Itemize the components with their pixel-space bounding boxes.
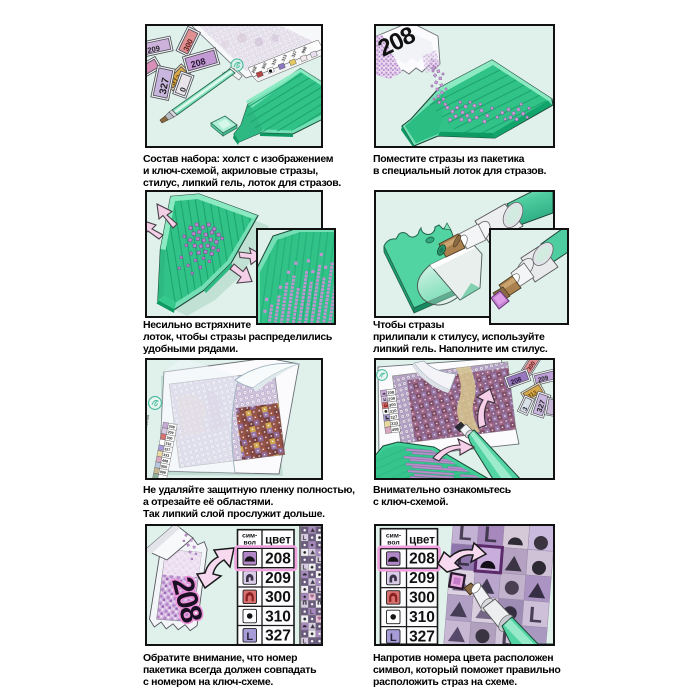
svg-text:L: L	[317, 588, 321, 594]
svg-text:300: 300	[265, 589, 291, 606]
svg-text:498: 498	[392, 426, 400, 432]
svg-text:сим-: сим-	[242, 533, 257, 540]
svg-text:327: 327	[409, 629, 435, 645]
svg-text:208: 208	[387, 390, 395, 396]
svg-text:L: L	[483, 526, 498, 547]
svg-text:L: L	[303, 566, 307, 572]
svg-text:209: 209	[265, 570, 291, 587]
svg-text:310: 310	[265, 608, 291, 625]
svg-text:L: L	[246, 631, 253, 643]
svg-text:L: L	[303, 640, 307, 644]
svg-text:L: L	[528, 602, 543, 628]
svg-text:цвет: цвет	[265, 535, 291, 547]
svg-text:327: 327	[265, 628, 291, 644]
svg-text:300: 300	[389, 402, 397, 408]
svg-text:вол: вол	[387, 540, 399, 547]
svg-text:L: L	[303, 536, 307, 542]
svg-text:310: 310	[409, 609, 435, 626]
svg-text:цвет: цвет	[409, 535, 435, 547]
svg-text:сим-: сим-	[386, 533, 401, 540]
svg-text:333: 333	[391, 420, 399, 426]
svg-text:310: 310	[389, 408, 397, 414]
svg-text:209: 209	[388, 396, 396, 402]
svg-text:300: 300	[409, 590, 435, 607]
svg-text:208: 208	[265, 551, 291, 568]
svg-text:L: L	[310, 610, 314, 616]
svg-text:208: 208	[409, 551, 435, 568]
svg-text:L: L	[390, 632, 397, 644]
svg-text:L: L	[317, 558, 321, 564]
svg-text:209: 209	[409, 570, 435, 587]
svg-text:327: 327	[390, 414, 398, 420]
svg-text:L: L	[458, 526, 473, 545]
